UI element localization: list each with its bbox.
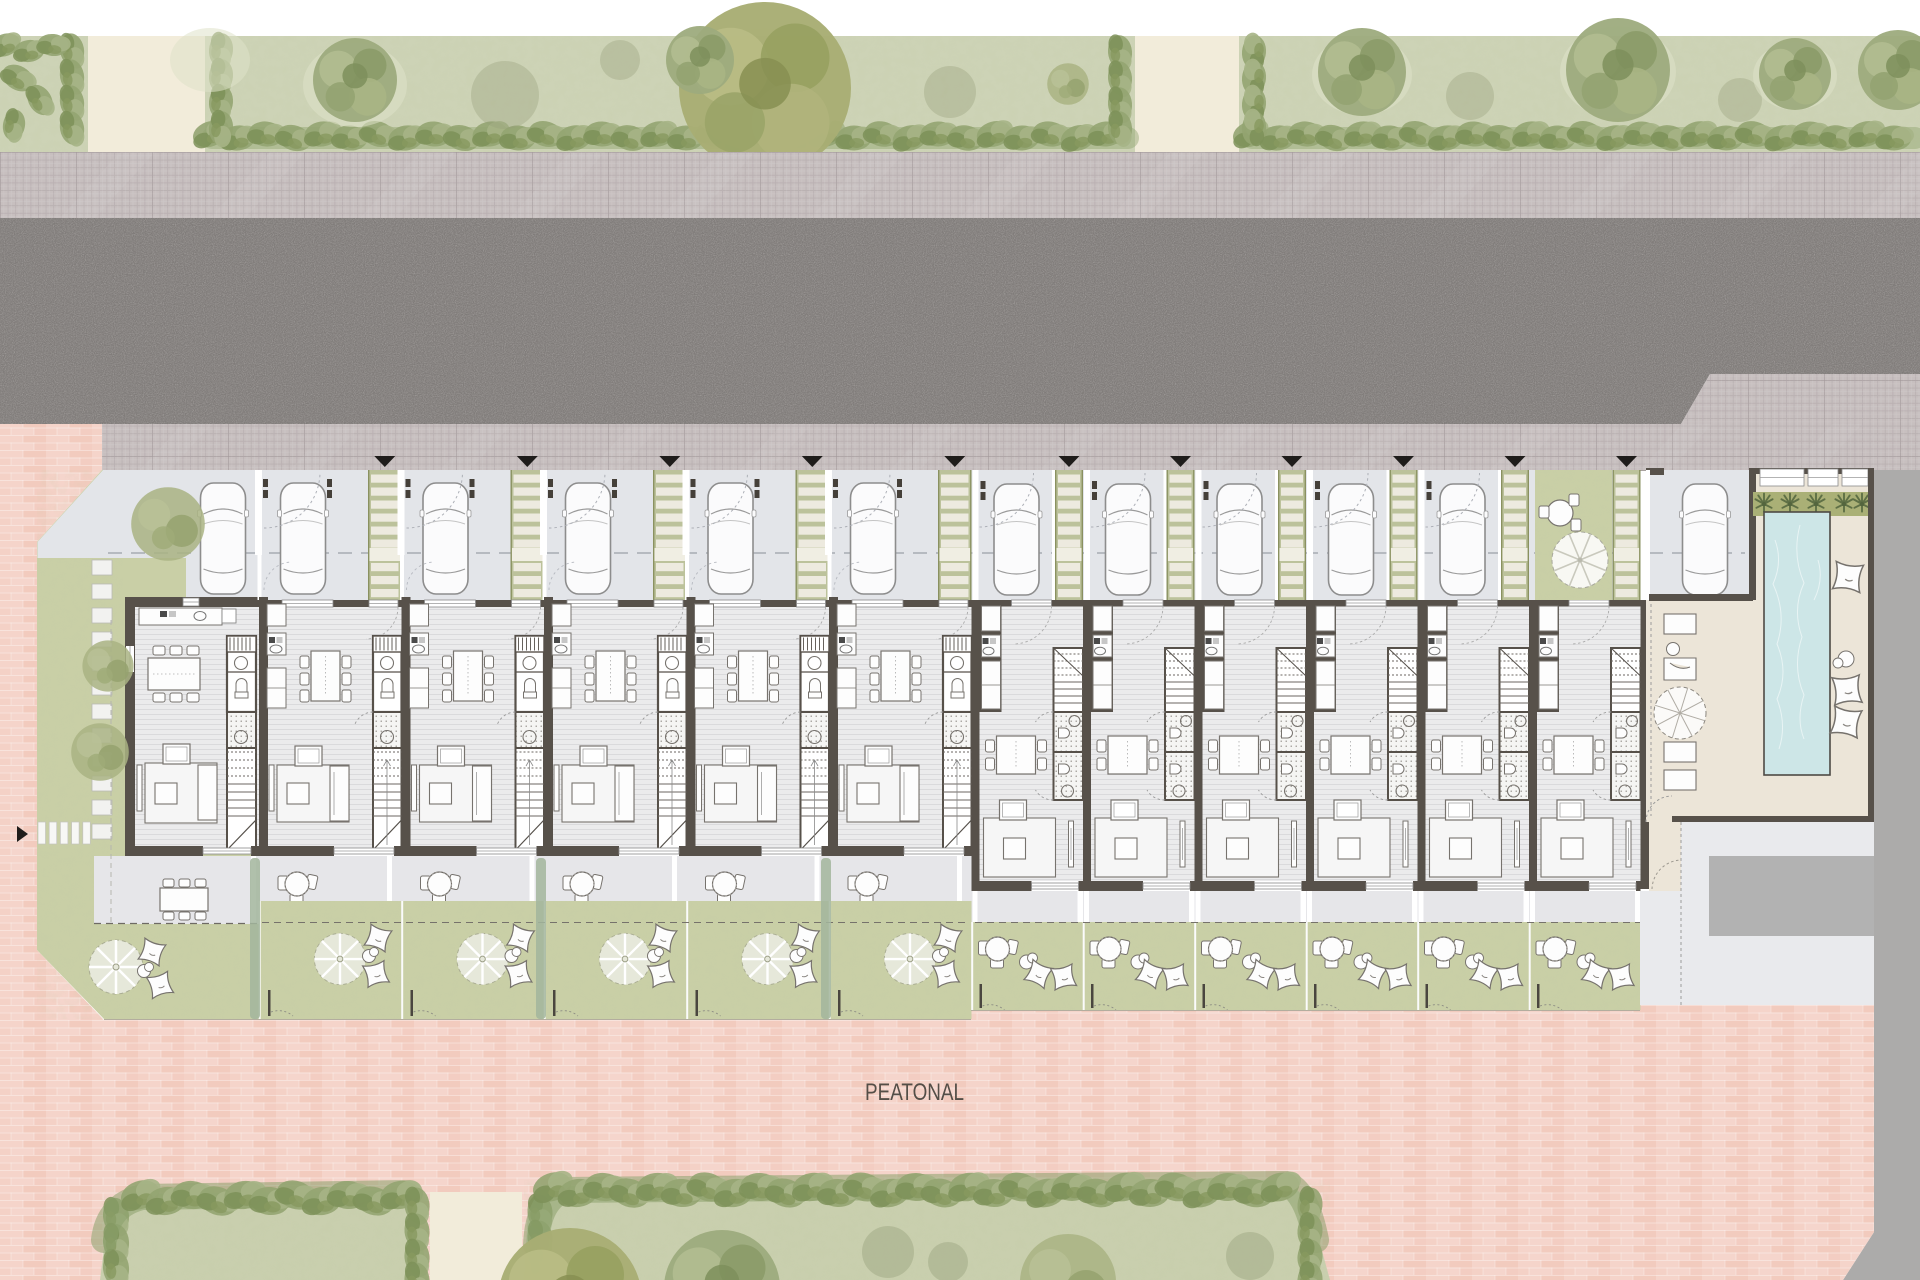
svg-text:PEATONAL: PEATONAL [865, 1079, 964, 1106]
